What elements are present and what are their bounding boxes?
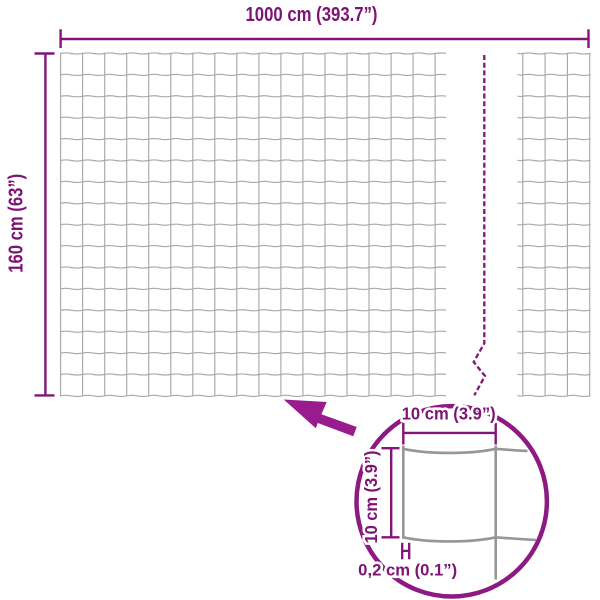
svg-text:0,2 cm (0.1”): 0,2 cm (0.1”) bbox=[358, 561, 457, 579]
svg-text:10 cm (3.9”): 10 cm (3.9”) bbox=[402, 403, 496, 423]
svg-text:10 cm (3.9”): 10 cm (3.9”) bbox=[361, 451, 381, 544]
svg-text:1000 cm (393.7”): 1000 cm (393.7”) bbox=[246, 4, 378, 26]
svg-text:160 cm (63”): 160 cm (63”) bbox=[5, 174, 27, 273]
